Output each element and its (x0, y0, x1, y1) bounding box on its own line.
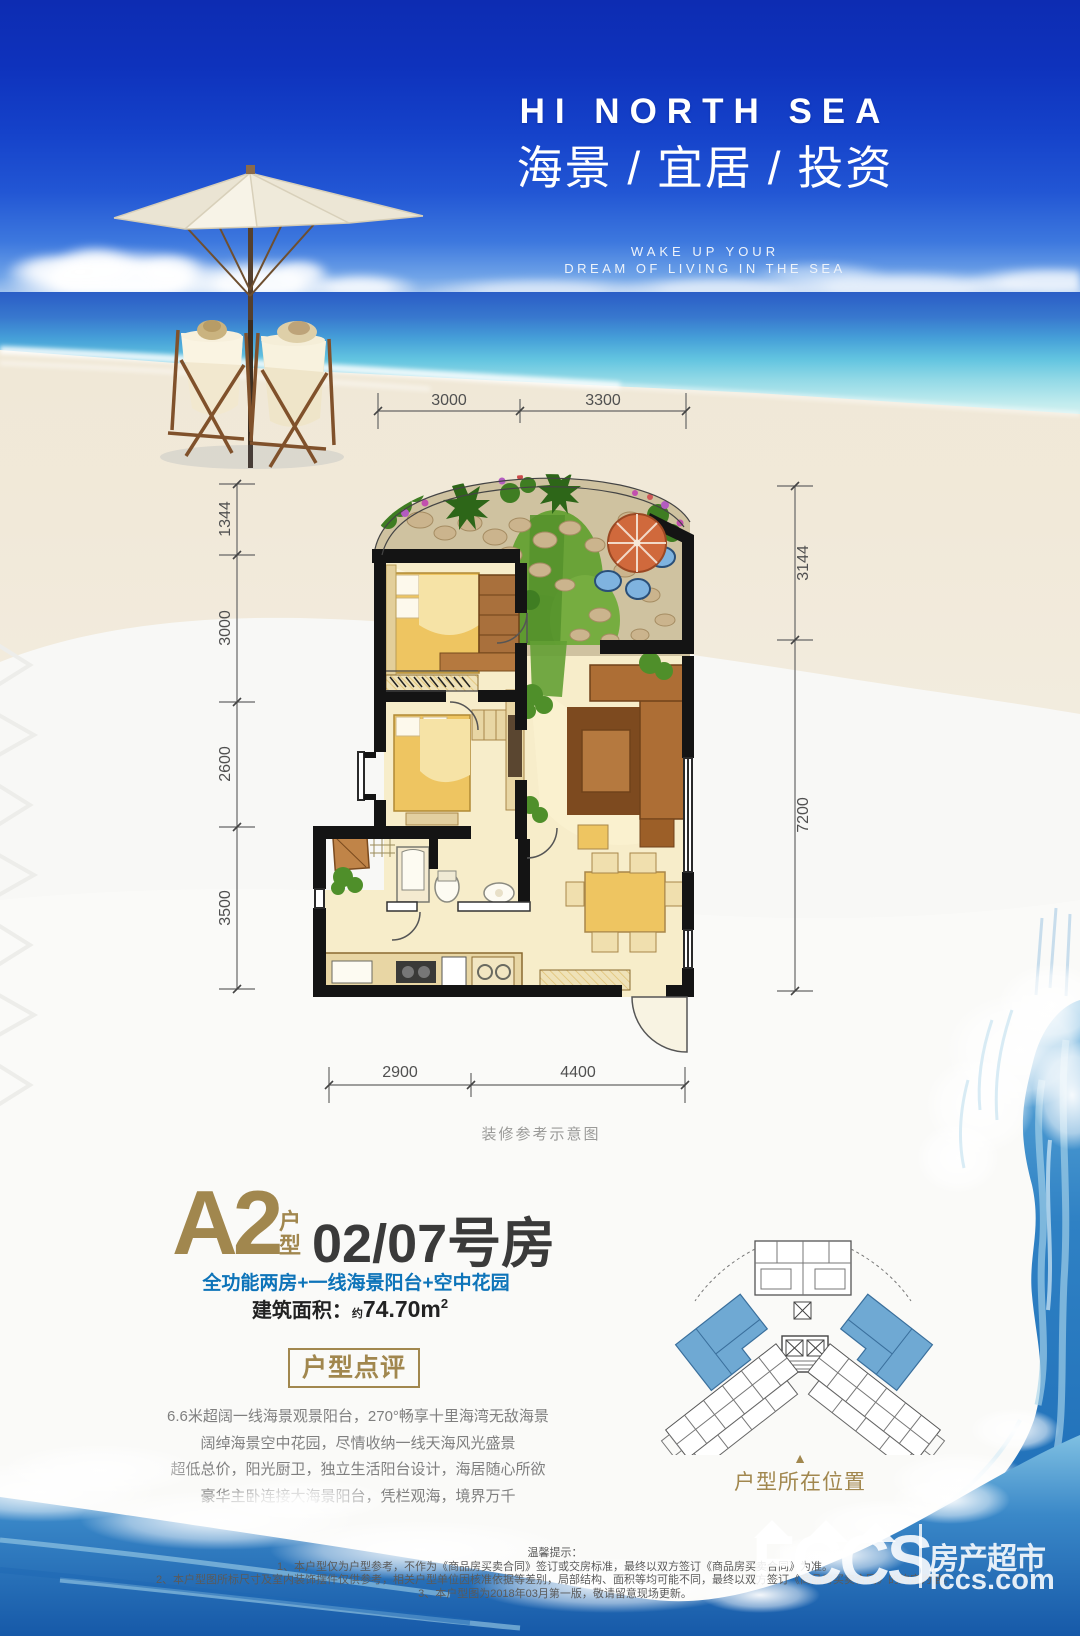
svg-text:3000: 3000 (431, 392, 467, 409)
svg-text:3144: 3144 (795, 545, 812, 581)
svg-text:2600: 2600 (217, 746, 234, 782)
svg-text:3500: 3500 (217, 890, 234, 926)
svg-text:1344: 1344 (217, 501, 234, 537)
svg-text:7200: 7200 (795, 797, 812, 833)
svg-text:装修参考示意图: 装修参考示意图 (481, 1125, 600, 1143)
svg-text:2900: 2900 (382, 1064, 418, 1081)
svg-text:3000: 3000 (217, 610, 234, 646)
svg-text:3300: 3300 (585, 392, 621, 409)
svg-text:4400: 4400 (560, 1064, 596, 1081)
